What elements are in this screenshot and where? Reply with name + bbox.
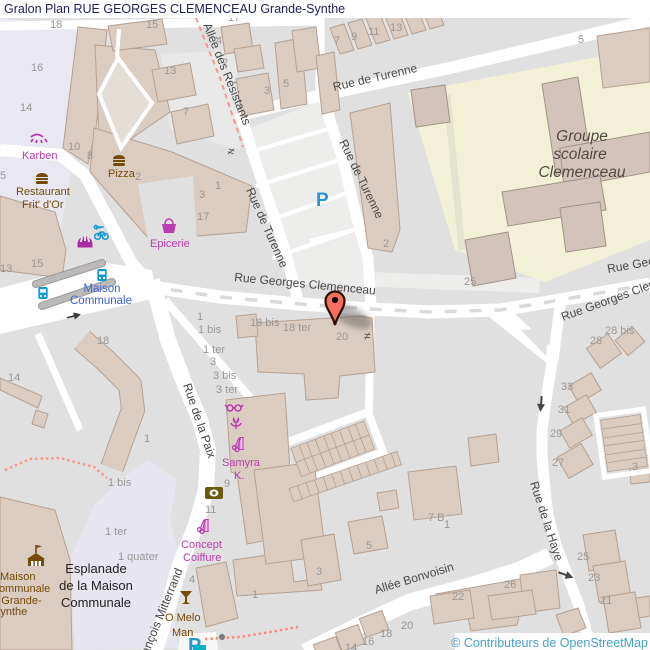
svg-text:Gralon Plan RUE GEORGES CLEMEN: Gralon Plan RUE GEORGES CLEMENCEAU Grand…	[4, 2, 345, 16]
svg-text:5: 5	[283, 78, 289, 90]
svg-text:8: 8	[87, 150, 93, 162]
svg-text:2: 2	[383, 238, 389, 250]
svg-text:Karben: Karben	[22, 150, 57, 162]
svg-text:29: 29	[550, 428, 562, 440]
svg-text:1: 1	[144, 433, 150, 445]
svg-text:18 ter: 18 ter	[283, 322, 311, 334]
svg-text:27: 27	[552, 457, 564, 469]
svg-text:11: 11	[205, 504, 216, 516]
svg-text:25: 25	[464, 276, 476, 288]
svg-text:18 bis: 18 bis	[250, 317, 280, 329]
svg-text:Man: Man	[172, 627, 193, 639]
svg-text:3: 3	[199, 189, 205, 201]
svg-text:20: 20	[336, 331, 348, 343]
svg-text:3 ter: 3 ter	[216, 384, 238, 396]
svg-text:de la Maison: de la Maison	[59, 578, 133, 593]
svg-text:28: 28	[590, 335, 602, 347]
svg-text:18: 18	[97, 335, 109, 347]
svg-text:scolaire: scolaire	[553, 146, 607, 163]
svg-text:7: 7	[334, 35, 340, 47]
svg-text:13: 13	[164, 65, 176, 77]
svg-text:9: 9	[224, 478, 230, 490]
svg-text:11: 11	[368, 26, 379, 38]
svg-text:K.: K.	[234, 470, 244, 482]
svg-text:Coiffure: Coiffure	[183, 552, 221, 564]
svg-text:Concept: Concept	[181, 539, 222, 551]
svg-text:7: 7	[183, 106, 189, 118]
svg-text:20: 20	[401, 620, 413, 632]
svg-text:Synthe: Synthe	[0, 606, 27, 618]
svg-text:2: 2	[135, 171, 141, 183]
svg-text:23: 23	[588, 572, 600, 584]
svg-text:16: 16	[362, 636, 374, 648]
svg-text:5: 5	[0, 170, 6, 182]
svg-text:18: 18	[50, 19, 62, 31]
svg-text:13: 13	[390, 22, 402, 34]
svg-text:31: 31	[558, 404, 570, 416]
svg-text:10: 10	[68, 141, 80, 153]
svg-text:5: 5	[366, 540, 372, 552]
svg-text:O Melo: O Melo	[165, 612, 200, 624]
svg-text:16: 16	[31, 62, 43, 74]
svg-text:15: 15	[146, 19, 158, 31]
svg-text:26: 26	[504, 579, 516, 591]
svg-text:1 ter: 1 ter	[105, 526, 127, 538]
svg-text:1 bis: 1 bis	[108, 477, 132, 489]
svg-text:2: 2	[222, 57, 228, 69]
svg-text:1 bis: 1 bis	[198, 324, 222, 336]
svg-text:33: 33	[561, 381, 573, 393]
svg-text:15: 15	[31, 258, 43, 270]
svg-text:3: 3	[210, 356, 216, 368]
svg-text:1: 1	[444, 519, 450, 531]
svg-text:3: 3	[264, 85, 270, 97]
svg-text:Clemenceau: Clemenceau	[538, 164, 625, 181]
svg-text:1: 1	[197, 311, 203, 323]
svg-text:Pizza: Pizza	[108, 168, 136, 180]
svg-text:25: 25	[577, 551, 589, 563]
svg-text:9: 9	[351, 31, 357, 43]
svg-text:Communale: Communale	[0, 583, 50, 595]
svg-text:21: 21	[600, 595, 612, 607]
svg-text:Restaurant: Restaurant	[16, 186, 70, 198]
svg-text:Esplanade: Esplanade	[65, 561, 126, 576]
svg-text:Samyra: Samyra	[222, 457, 261, 469]
svg-text:18: 18	[380, 628, 392, 640]
svg-text:13: 13	[0, 263, 12, 275]
svg-text:28 bis: 28 bis	[605, 325, 635, 337]
svg-text:3: 3	[632, 461, 638, 473]
svg-text:5: 5	[578, 34, 584, 46]
svg-text:3 bis: 3 bis	[213, 370, 237, 382]
svg-text:4: 4	[189, 574, 195, 586]
svg-text:P: P	[316, 190, 329, 211]
svg-text:7 B: 7 B	[428, 512, 445, 524]
svg-text:Communale: Communale	[70, 295, 132, 307]
svg-text:Communale: Communale	[61, 595, 131, 610]
svg-text:Maison: Maison	[0, 571, 35, 583]
svg-text:© Contributeurs de OpenStreetM: © Contributeurs de OpenStreetMap	[451, 636, 648, 650]
svg-text:14: 14	[8, 372, 20, 384]
svg-text:1 ter: 1 ter	[203, 344, 225, 356]
svg-text:Groupe: Groupe	[556, 128, 608, 145]
svg-text:22: 22	[452, 591, 464, 603]
svg-text:4: 4	[216, 35, 222, 47]
svg-text:17: 17	[197, 211, 209, 223]
svg-text:14: 14	[345, 642, 357, 650]
svg-text:3: 3	[316, 566, 322, 578]
svg-text:1: 1	[215, 180, 221, 192]
svg-text:Epicerie: Epicerie	[150, 238, 190, 250]
svg-text:Maison: Maison	[83, 283, 120, 295]
svg-text:14: 14	[20, 102, 32, 114]
svg-text:1: 1	[252, 589, 258, 601]
svg-text:Frit' d'Or: Frit' d'Or	[22, 199, 64, 211]
